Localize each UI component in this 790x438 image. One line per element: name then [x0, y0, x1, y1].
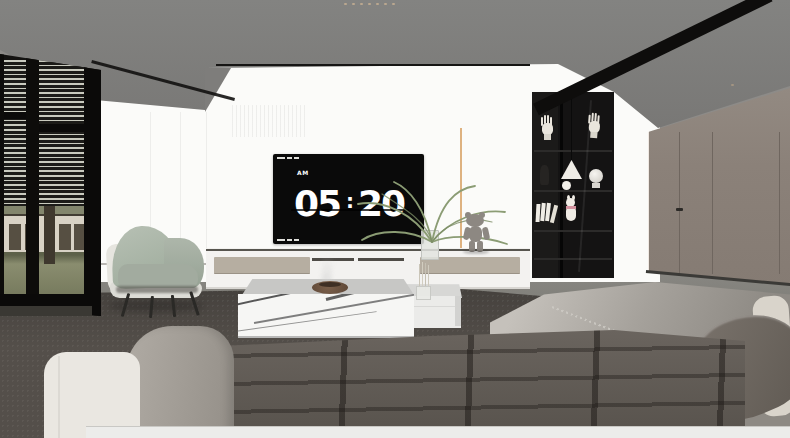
building-window — [59, 224, 71, 250]
venetian-blinds — [3, 60, 87, 210]
incense-bowl-inner — [319, 282, 341, 287]
spotlight-icon — [368, 3, 371, 5]
chair-seat-cushion — [118, 264, 198, 288]
venetian-blind-window — [0, 48, 101, 318]
pendant-cord — [571, 94, 572, 164]
dark-vase — [540, 165, 549, 185]
shelf-board — [534, 150, 612, 152]
tufted-seat-cushion — [222, 330, 745, 435]
sofa-armrest — [126, 326, 234, 438]
bezel-tick-marks — [277, 157, 285, 159]
incense-smoke — [321, 256, 332, 282]
spotlight-icon — [731, 84, 734, 86]
sofa-plinth — [86, 426, 790, 438]
figurine-scarf — [566, 206, 576, 209]
bezel-tick-marks — [287, 157, 292, 159]
white-table-side — [455, 296, 461, 326]
bezel-tick-marks — [277, 239, 285, 241]
shelf-board — [534, 258, 612, 260]
hand-sculpture-icon — [541, 115, 554, 140]
spotlight-icon — [392, 3, 395, 5]
marble-table-shadow — [238, 336, 414, 338]
books — [536, 203, 562, 223]
spotlight-icon — [376, 3, 379, 5]
stem-vase — [416, 286, 431, 300]
window-mullion — [26, 54, 39, 316]
spotlight-icon — [352, 3, 355, 5]
window-sill-shadow — [0, 306, 92, 316]
door-seam — [679, 132, 680, 274]
table-lamp-base — [592, 183, 600, 188]
console-drawer — [214, 257, 310, 274]
ceiling-trim-line — [216, 64, 530, 66]
living-room-render: AM 05 : 20 — [0, 0, 790, 438]
wall-slat-texture — [232, 105, 308, 137]
spotlight-icon — [360, 3, 363, 5]
bear-figurine-icon — [462, 210, 494, 255]
bezel-tick-marks — [294, 157, 299, 159]
chaise-seam — [58, 356, 60, 438]
spotlight-icon — [384, 3, 387, 5]
window-frame — [0, 52, 4, 312]
spotlight-icon — [344, 3, 347, 5]
shelf-board — [534, 190, 612, 192]
console-niche — [312, 258, 354, 261]
marble-coffee-table — [238, 294, 414, 338]
window-frame-column — [84, 62, 101, 318]
pendant-bulb — [562, 181, 571, 190]
wall-panel-seam — [206, 112, 207, 264]
shelf-board — [534, 230, 612, 232]
window-transom — [37, 124, 86, 132]
chair-underside-shadow — [116, 286, 198, 293]
clock-period-label: AM — [297, 169, 309, 176]
door-seam — [712, 132, 713, 274]
bezel-tick-marks — [294, 239, 299, 241]
door-seam — [779, 132, 780, 274]
building-window — [9, 224, 21, 250]
tree-trunk — [44, 206, 55, 264]
hand-sculpture-icon — [587, 113, 602, 139]
clock-hours: 05 — [294, 186, 340, 222]
table-lamp-icon — [589, 169, 603, 183]
door-handle — [676, 208, 683, 211]
window-transom — [0, 112, 28, 119]
bezel-tick-marks — [287, 239, 292, 241]
